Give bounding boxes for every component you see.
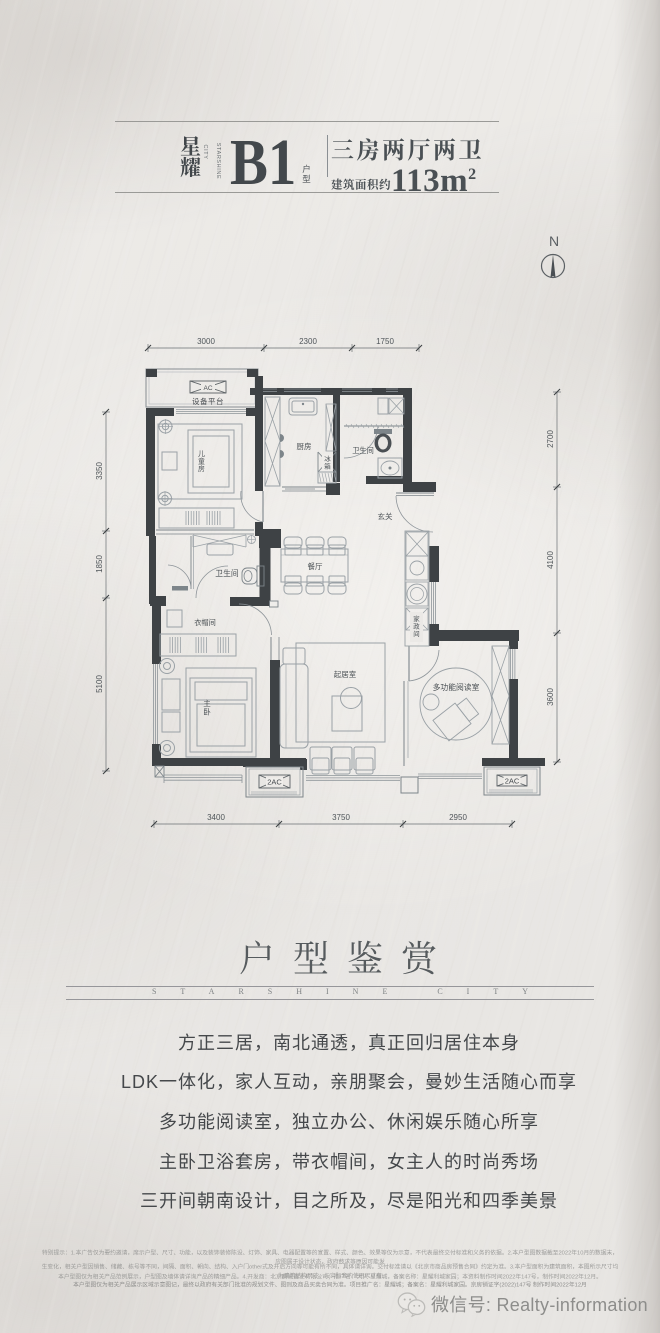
svg-text:1850: 1850	[95, 555, 104, 573]
svg-text:3750: 3750	[332, 813, 350, 822]
svg-text:2AC: 2AC	[267, 778, 282, 787]
svg-text:1750: 1750	[376, 337, 394, 346]
svg-text:3000: 3000	[197, 337, 215, 346]
svg-text:家: 家	[413, 614, 420, 623]
svg-text:玄关: 玄关	[378, 511, 393, 521]
svg-text:3350: 3350	[95, 462, 104, 480]
svg-text:3600: 3600	[546, 688, 555, 706]
svg-text:2AC: 2AC	[505, 777, 520, 786]
svg-text:厨房: 厨房	[297, 441, 312, 451]
svg-text:2950: 2950	[449, 813, 467, 822]
svg-text:AC: AC	[203, 385, 212, 392]
svg-text:餐厅: 餐厅	[308, 562, 323, 571]
svg-text:卧: 卧	[203, 708, 211, 717]
svg-text:冰: 冰	[324, 454, 331, 463]
svg-text:2700: 2700	[546, 430, 555, 448]
svg-text:房: 房	[198, 464, 205, 473]
svg-text:2300: 2300	[299, 337, 317, 346]
svg-text:政: 政	[413, 621, 420, 630]
svg-text:箱: 箱	[324, 462, 331, 471]
svg-text:间: 间	[413, 630, 419, 638]
svg-text:设备平台: 设备平台	[192, 396, 224, 406]
svg-text:卫生间: 卫生间	[215, 568, 239, 578]
svg-text:卫生间: 卫生间	[352, 446, 374, 455]
svg-text:N: N	[549, 233, 559, 249]
svg-text:起居室: 起居室	[334, 669, 357, 679]
svg-text:多功能阅读室: 多功能阅读室	[433, 682, 480, 692]
svg-text:主: 主	[203, 698, 211, 708]
svg-text:5100: 5100	[95, 675, 104, 693]
svg-text:3400: 3400	[207, 813, 225, 822]
svg-text:4100: 4100	[546, 551, 555, 569]
svg-text:儿: 儿	[198, 450, 205, 458]
svg-text:童: 童	[198, 457, 205, 466]
svg-text:衣帽间: 衣帽间	[194, 618, 216, 627]
